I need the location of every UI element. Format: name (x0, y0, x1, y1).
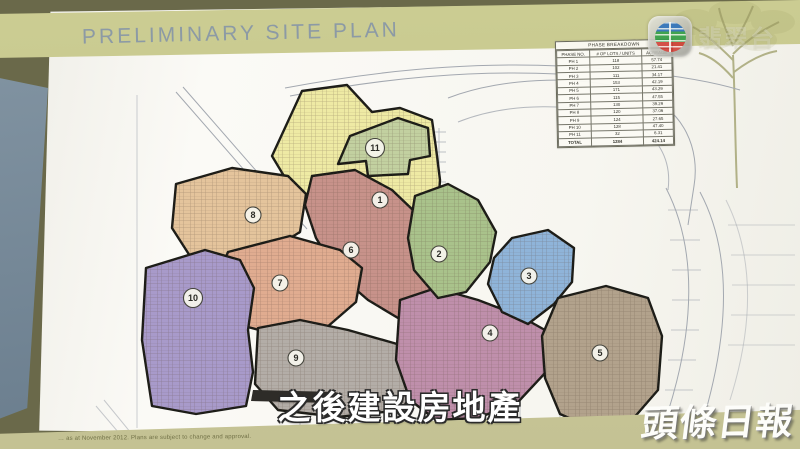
phase-7-label: 7 (272, 275, 288, 291)
tvb-globe-icon (655, 22, 686, 52)
channel-watermark: 翡翠台 (648, 16, 776, 57)
phase-11-label: 11 (366, 139, 385, 158)
tvb-logo-icon (648, 16, 692, 57)
svg-text:6: 6 (348, 245, 353, 255)
phase-5-label: 5 (592, 345, 608, 361)
phase-9-label: 9 (288, 350, 304, 366)
phase-1-label: 1 (372, 192, 388, 208)
press-watermark: 頭條日報 (639, 391, 798, 448)
channel-name: 翡翠台 (698, 19, 776, 54)
table-cell: 1284 (591, 137, 643, 145)
phase-8-label: 8 (245, 207, 261, 223)
svg-text:11: 11 (370, 143, 380, 153)
svg-text:8: 8 (250, 210, 255, 220)
phase-6-label: 6 (343, 242, 359, 258)
broadcast-subtitle: 之後建設房地產 (278, 381, 523, 429)
road-line (728, 225, 795, 345)
phase-4-label: 4 (482, 325, 498, 341)
svg-text:4: 4 (487, 328, 492, 338)
phase-2-label: 2 (431, 246, 447, 262)
phase-10-label: 10 (184, 289, 203, 308)
svg-text:7: 7 (277, 278, 282, 288)
tv-frame: PRELIMINARY SITE PLAN (0, 0, 800, 449)
table-cell: 424.14 (643, 137, 673, 145)
svg-text:2: 2 (436, 249, 441, 259)
table-row: TOTAL1284424.14 (558, 137, 673, 147)
svg-text:3: 3 (526, 271, 531, 281)
road-line (726, 200, 748, 400)
svg-text:9: 9 (293, 353, 298, 363)
svg-text:5: 5 (597, 348, 602, 358)
svg-text:1: 1 (377, 195, 382, 205)
svg-text:10: 10 (188, 293, 198, 303)
table-cell: TOTAL (558, 138, 591, 146)
road-line (700, 192, 724, 424)
phase-3-label: 3 (521, 268, 537, 284)
